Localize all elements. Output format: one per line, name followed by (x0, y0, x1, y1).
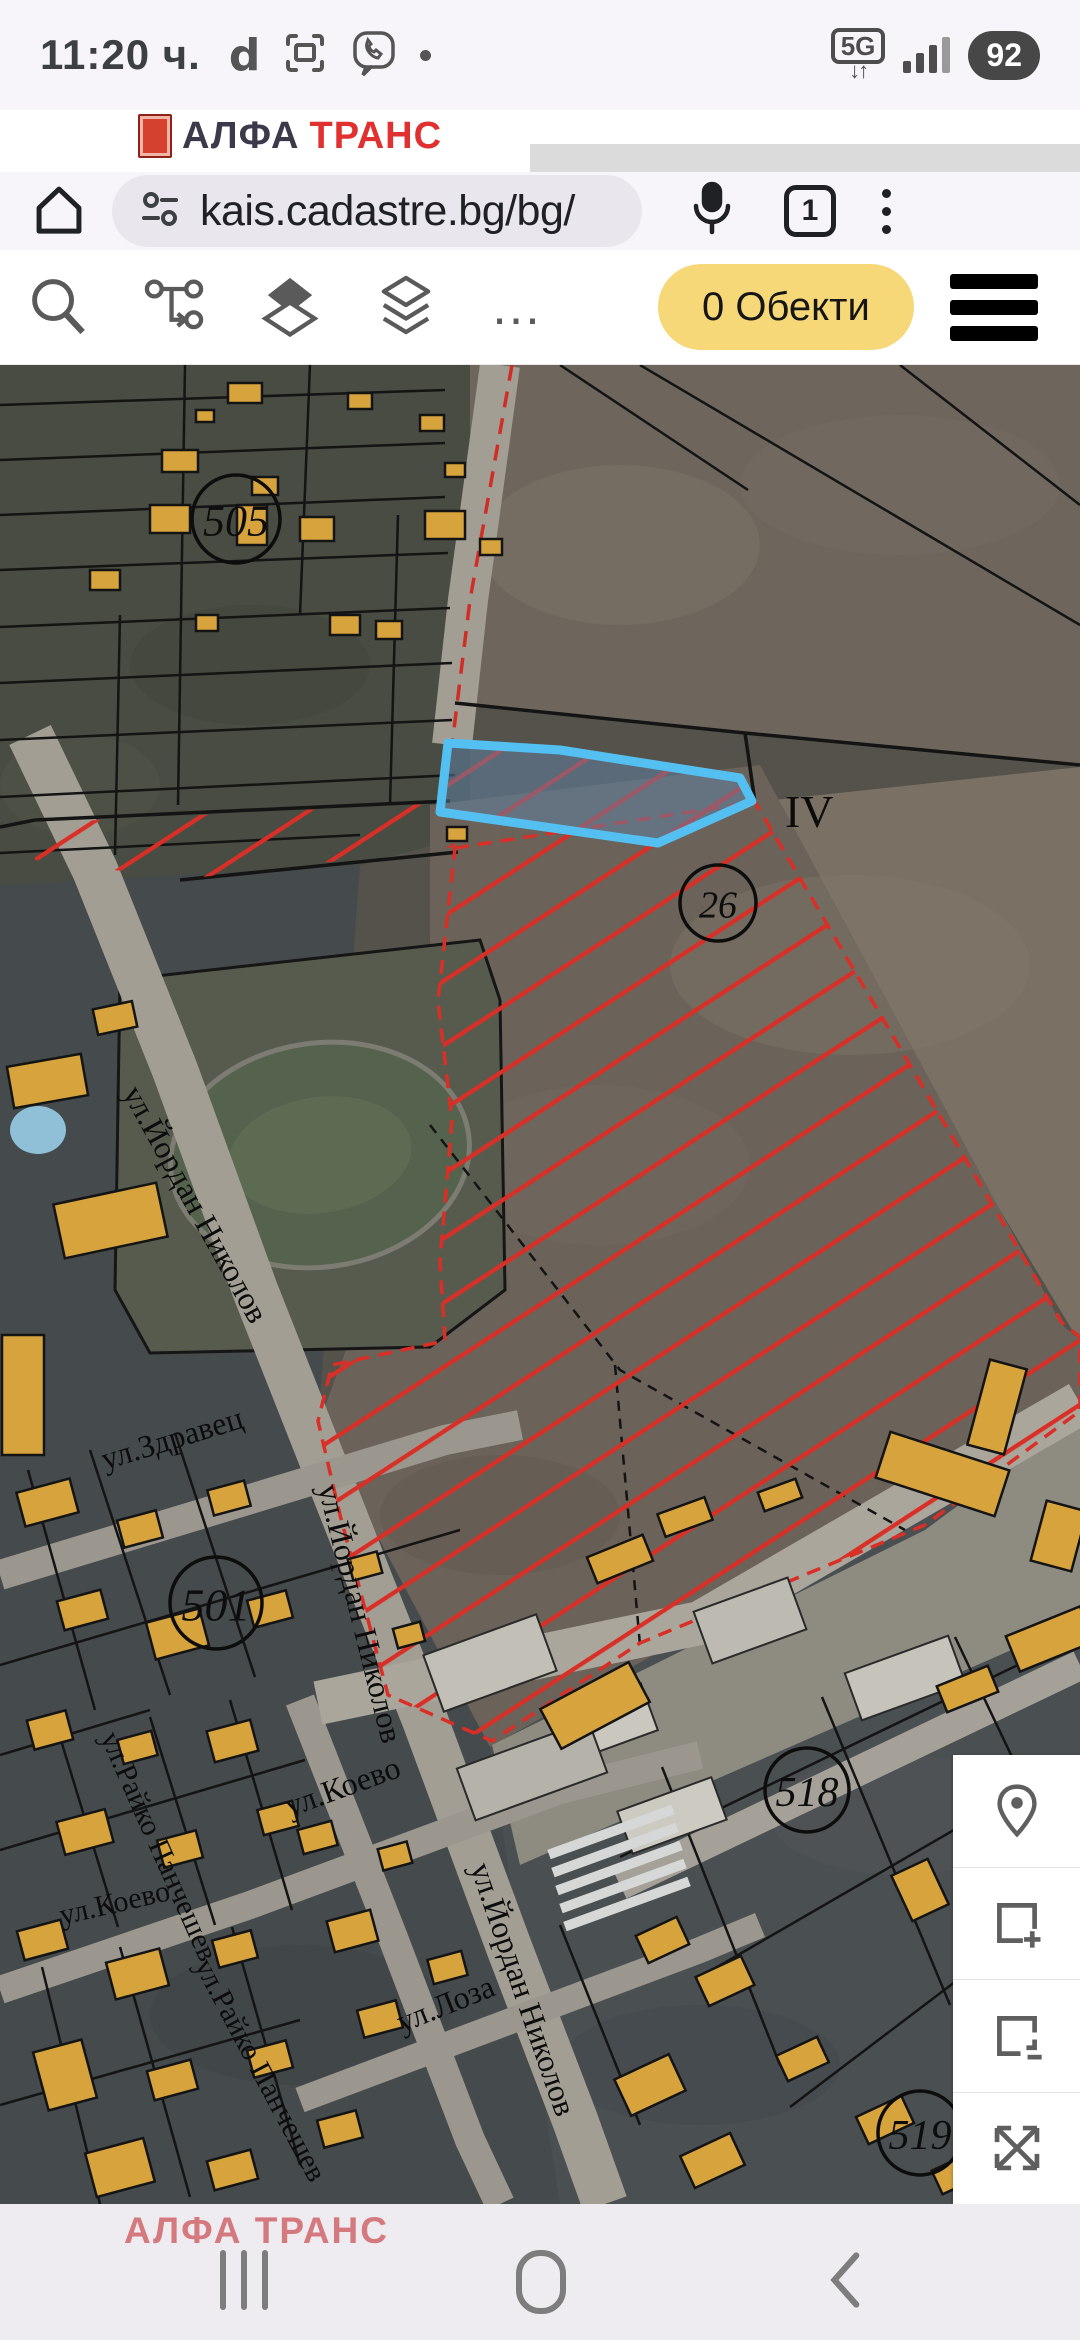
map-building (480, 539, 502, 555)
notification-banner: АЛФА ТРАНС (0, 110, 1080, 172)
map-canvas[interactable]: IV50526501518519ул.Йордан Николовул.Йорд… (0, 365, 1080, 2204)
signal-strength-icon (903, 37, 950, 73)
map-building (445, 463, 465, 477)
map-building (162, 450, 198, 472)
android-nav-bar: АЛФА ТРАНС (0, 2204, 1080, 2340)
map-tool-panel (953, 1755, 1080, 2204)
network-5g-icon: 5G↓↑ (831, 28, 886, 82)
alfa-trans-logo: АЛФА ТРАНС (138, 114, 442, 158)
url-text: kais.cadastre.bg/bg/ (200, 187, 575, 236)
map-building (90, 570, 120, 590)
menu-hamburger-icon[interactable] (950, 274, 1038, 341)
browser-address-bar: kais.cadastre.bg/bg/ 1 (0, 172, 1080, 250)
more-tools-icon[interactable]: … (490, 297, 546, 318)
viber-icon (350, 28, 398, 83)
notification-dot-icon (420, 50, 431, 61)
map-building (348, 393, 372, 409)
svg-text:505: 505 (203, 497, 269, 546)
remove-area-button[interactable] (953, 1980, 1080, 2093)
map-building (2, 1335, 44, 1455)
map-building (196, 410, 214, 422)
recents-button[interactable] (220, 2250, 268, 2310)
clock: 11:20 ч. (40, 31, 201, 79)
map-building (196, 615, 218, 631)
map-building (228, 383, 262, 403)
svg-text:518: 518 (776, 1770, 839, 1816)
screenshot-icon (282, 30, 328, 81)
kais-toolbar: … 0 Обекти (0, 250, 1080, 365)
alfa-trans-watermark: АЛФА ТРАНС (124, 2210, 389, 2252)
svg-text:501: 501 (182, 1579, 251, 1630)
objects-count-button[interactable]: 0 Обекти (658, 264, 914, 350)
browser-menu-icon[interactable] (882, 189, 891, 234)
battery-indicator: 92 (968, 31, 1040, 80)
map-building (425, 511, 465, 539)
mic-icon[interactable] (686, 180, 738, 243)
phone-screen: 11:20 ч. d 5G↓↑ (0, 0, 1080, 2340)
map-label-iv: IV (785, 786, 834, 837)
svg-text:519: 519 (889, 2113, 952, 2159)
tune-icon[interactable] (138, 187, 182, 236)
map-building (150, 505, 190, 533)
home-icon[interactable] (28, 178, 90, 245)
add-area-button[interactable] (953, 1868, 1080, 1981)
pool (10, 1106, 66, 1154)
route-tool-icon[interactable] (142, 273, 206, 342)
search-icon[interactable] (26, 273, 90, 342)
layers-filled-icon[interactable] (258, 273, 322, 342)
notification-app-icon: d (229, 30, 261, 81)
status-bar: 11:20 ч. d 5G↓↑ (0, 0, 1080, 110)
banner-grey-strip (530, 144, 1080, 172)
map-building (420, 415, 444, 431)
map-building (447, 827, 467, 841)
fullscreen-button[interactable] (953, 2093, 1080, 2205)
back-button[interactable] (822, 2250, 866, 2315)
url-field[interactable]: kais.cadastre.bg/bg/ (112, 175, 642, 247)
layers-outline-icon[interactable] (374, 273, 438, 342)
map-building (300, 517, 334, 541)
svg-text:26: 26 (699, 884, 737, 926)
map-building (376, 621, 402, 639)
locate-pin-button[interactable] (953, 1755, 1080, 1868)
building-logo-icon (138, 114, 172, 158)
tab-switcher[interactable]: 1 (784, 185, 836, 237)
map-building (330, 615, 360, 635)
home-button[interactable] (516, 2250, 566, 2314)
